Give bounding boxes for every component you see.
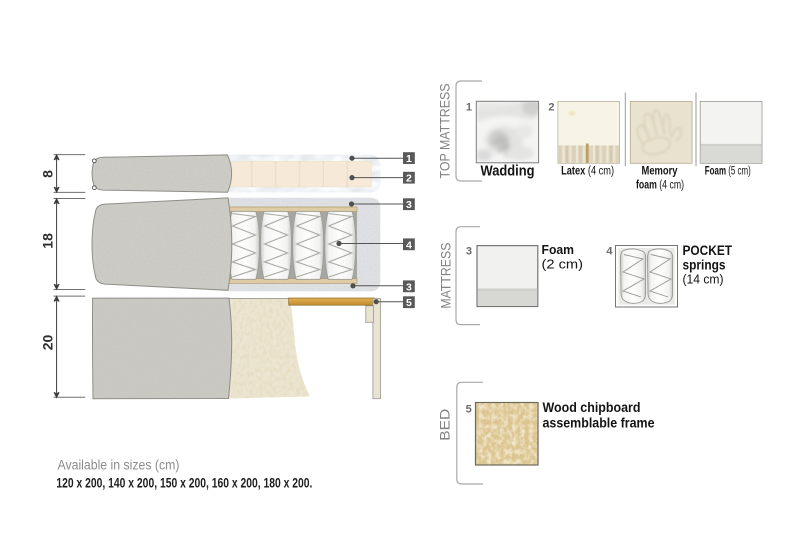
svg-text:Foam: Foam — [542, 242, 575, 257]
svg-text:18: 18 — [39, 233, 55, 249]
svg-text:1: 1 — [466, 102, 472, 114]
svg-text:4: 4 — [606, 245, 613, 257]
svg-text:3: 3 — [466, 245, 472, 257]
svg-text:120 x 200, 140 x 200, 150 x 20: 120 x 200, 140 x 200, 150 x 200, 160 x 2… — [56, 475, 312, 490]
svg-text:5: 5 — [466, 404, 472, 416]
svg-text:8: 8 — [39, 170, 55, 178]
svg-text:Available in sizes (cm): Available in sizes (cm) — [58, 457, 180, 472]
svg-text:5: 5 — [406, 297, 412, 309]
svg-text:Memory: Memory — [642, 166, 678, 178]
svg-text:20: 20 — [39, 335, 55, 351]
svg-text:4: 4 — [406, 239, 412, 251]
svg-text:MATTRESS: MATTRESS — [438, 243, 453, 309]
svg-text:(2 cm): (2 cm) — [542, 257, 584, 272]
svg-text:Wadding: Wadding — [481, 164, 535, 180]
svg-text:2: 2 — [548, 102, 554, 114]
svg-text:2: 2 — [406, 173, 412, 185]
svg-text:3: 3 — [406, 281, 412, 293]
svg-text:(14 cm): (14 cm) — [683, 271, 724, 286]
svg-text:1: 1 — [406, 153, 412, 165]
svg-text:Wood chipboard: Wood chipboard — [543, 400, 641, 415]
svg-text:TOP MATTRESS: TOP MATTRESS — [438, 84, 453, 179]
svg-text:BED: BED — [438, 408, 453, 440]
svg-text:assemblable frame: assemblable frame — [543, 415, 655, 430]
svg-text:Latex (4 cm): Latex (4 cm) — [561, 166, 614, 178]
svg-text:Foam (5 cm): Foam (5 cm) — [705, 166, 751, 178]
svg-text:foam (4 cm): foam (4 cm) — [636, 180, 684, 192]
svg-text:springs: springs — [683, 257, 726, 272]
svg-text:POCKET: POCKET — [683, 243, 733, 258]
svg-text:3: 3 — [406, 199, 412, 211]
